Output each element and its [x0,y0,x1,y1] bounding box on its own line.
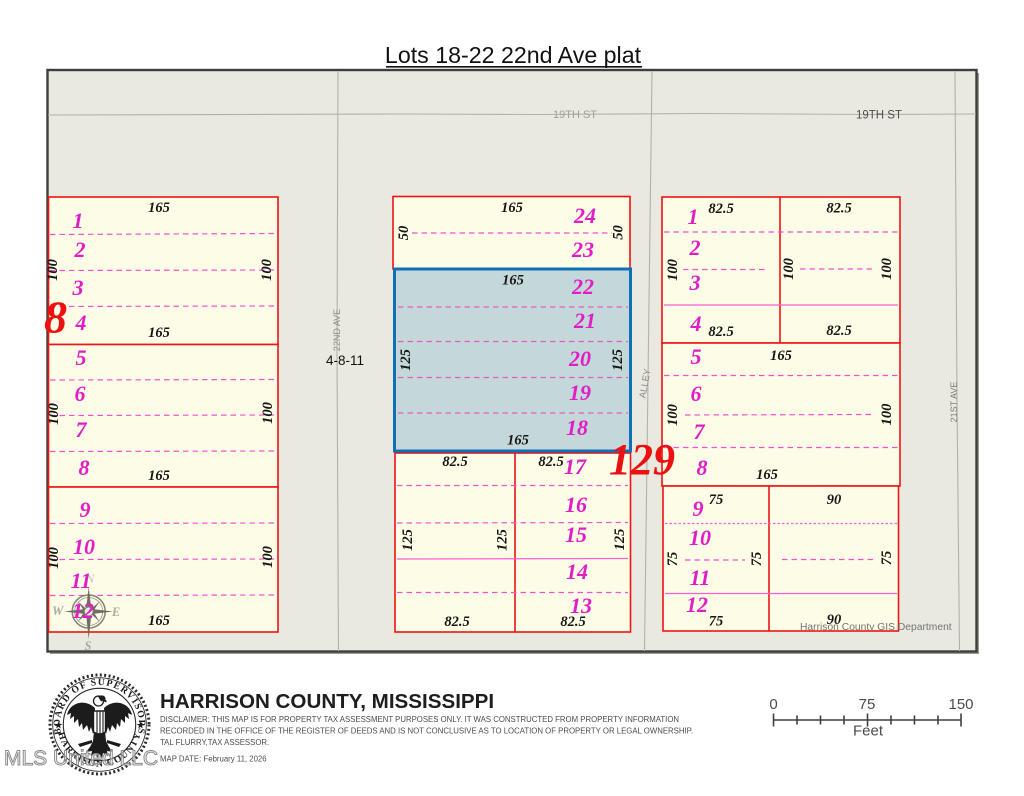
svg-text:50: 50 [611,225,627,240]
svg-text:129: 129 [609,435,675,484]
svg-text:75: 75 [709,492,724,508]
svg-text:Feet: Feet [853,723,884,740]
svg-text:15: 15 [565,522,587,547]
svg-text:165: 165 [148,468,170,484]
svg-text:16: 16 [565,492,587,517]
svg-text:★: ★ [54,721,63,732]
svg-text:0: 0 [769,696,777,713]
svg-text:11: 11 [71,568,92,593]
svg-text:125: 125 [398,349,414,371]
svg-text:19: 19 [569,380,591,405]
svg-text:82.5: 82.5 [826,323,851,339]
svg-text:75: 75 [749,552,765,567]
svg-text:19TH ST: 19TH ST [553,109,597,121]
svg-text:1: 1 [73,208,84,233]
svg-text:3: 3 [689,270,701,295]
svg-text:RECORDED IN THE OFFICE OF THE: RECORDED IN THE OFFICE OF THE REGISTER O… [160,727,693,736]
svg-text:5: 5 [691,344,702,369]
svg-text:100: 100 [46,403,62,425]
svg-text:4: 4 [75,310,87,335]
svg-text:8: 8 [79,455,90,480]
svg-text:TAL FLURRY,TAX ASSESSOR.: TAL FLURRY,TAX ASSESSOR. [160,738,269,747]
svg-text:MLS United LLC: MLS United LLC [4,747,158,770]
svg-text:165: 165 [770,348,792,364]
svg-text:50: 50 [396,226,412,241]
svg-text:22ND AVE: 22ND AVE [332,309,342,351]
svg-text:6: 6 [691,381,702,406]
svg-text:8: 8 [44,292,67,343]
svg-text:HARRISON COUNTY, MISSISSIPPI: HARRISON COUNTY, MISSISSIPPI [160,690,494,713]
svg-text:75: 75 [879,551,895,566]
svg-text:100: 100 [259,259,275,281]
svg-text:E: E [111,605,120,619]
svg-text:18: 18 [566,415,588,440]
svg-text:100: 100 [260,546,276,568]
svg-text:165: 165 [148,200,170,216]
svg-text:11: 11 [690,565,711,590]
svg-text:75: 75 [859,696,876,713]
svg-text:75: 75 [709,614,724,630]
svg-text:165: 165 [501,200,523,216]
svg-text:100: 100 [260,402,276,424]
svg-text:75: 75 [665,552,681,567]
svg-text:19TH ST: 19TH ST [856,110,902,122]
svg-text:17: 17 [564,454,587,479]
svg-text:165: 165 [148,325,170,341]
svg-text:100: 100 [665,259,681,281]
svg-text:7: 7 [694,419,706,444]
svg-text:4-8-11: 4-8-11 [326,353,364,368]
svg-text:82.5: 82.5 [442,454,467,470]
svg-text:100: 100 [781,258,797,280]
svg-text:82.5: 82.5 [560,614,585,630]
svg-text:MAP DATE: February 11, 2026: MAP DATE: February 11, 2026 [160,755,267,764]
svg-text:4: 4 [690,311,702,336]
svg-text:125: 125 [400,529,416,551]
svg-text:S: S [85,639,92,653]
svg-text:6: 6 [75,381,86,406]
svg-text:12: 12 [72,598,94,623]
svg-text:82.5: 82.5 [538,454,563,470]
svg-text:14: 14 [566,559,588,584]
svg-text:12: 12 [686,592,708,617]
svg-text:165: 165 [502,273,524,289]
svg-text:21: 21 [573,308,596,333]
svg-text:125: 125 [610,349,626,371]
svg-text:23: 23 [571,237,594,262]
svg-text:9: 9 [693,496,704,521]
svg-text:24: 24 [573,203,596,228]
svg-text:Lots 18-22 22nd Ave plat: Lots 18-22 22nd Ave plat [385,42,642,68]
svg-text:DISCLAIMER: THIS MAP IS FOR PR: DISCLAIMER: THIS MAP IS FOR PROPERTY TAX… [160,715,679,724]
svg-text:82.5: 82.5 [708,324,733,340]
svg-text:125: 125 [612,529,628,551]
svg-text:90: 90 [827,492,842,508]
svg-text:22: 22 [571,274,594,299]
svg-text:100: 100 [46,547,62,569]
svg-text:9: 9 [80,497,91,522]
svg-text:8: 8 [697,455,708,480]
svg-text:82.5: 82.5 [708,201,733,217]
svg-text:165: 165 [507,433,529,449]
svg-text:★: ★ [136,721,145,732]
svg-text:Harrison County GIS Department: Harrison County GIS Department [800,622,952,633]
svg-text:100: 100 [879,258,895,280]
svg-text:10: 10 [689,525,711,550]
svg-text:100: 100 [45,259,61,281]
svg-text:2: 2 [74,237,86,262]
svg-text:10: 10 [73,534,95,559]
svg-text:3: 3 [72,275,84,300]
svg-text:7: 7 [76,417,88,442]
svg-text:100: 100 [879,404,895,426]
svg-text:21ST AVE: 21ST AVE [949,382,959,423]
svg-text:150: 150 [948,696,973,713]
svg-text:W: W [52,604,64,618]
svg-text:165: 165 [756,467,778,483]
svg-text:165: 165 [148,613,170,629]
svg-text:20: 20 [568,346,591,371]
svg-text:82.5: 82.5 [826,201,851,217]
svg-text:100: 100 [665,404,681,426]
svg-text:5: 5 [76,345,87,370]
svg-text:2: 2 [689,235,701,260]
svg-text:82.5: 82.5 [444,614,469,630]
svg-text:1: 1 [688,204,699,229]
svg-text:125: 125 [495,529,511,551]
